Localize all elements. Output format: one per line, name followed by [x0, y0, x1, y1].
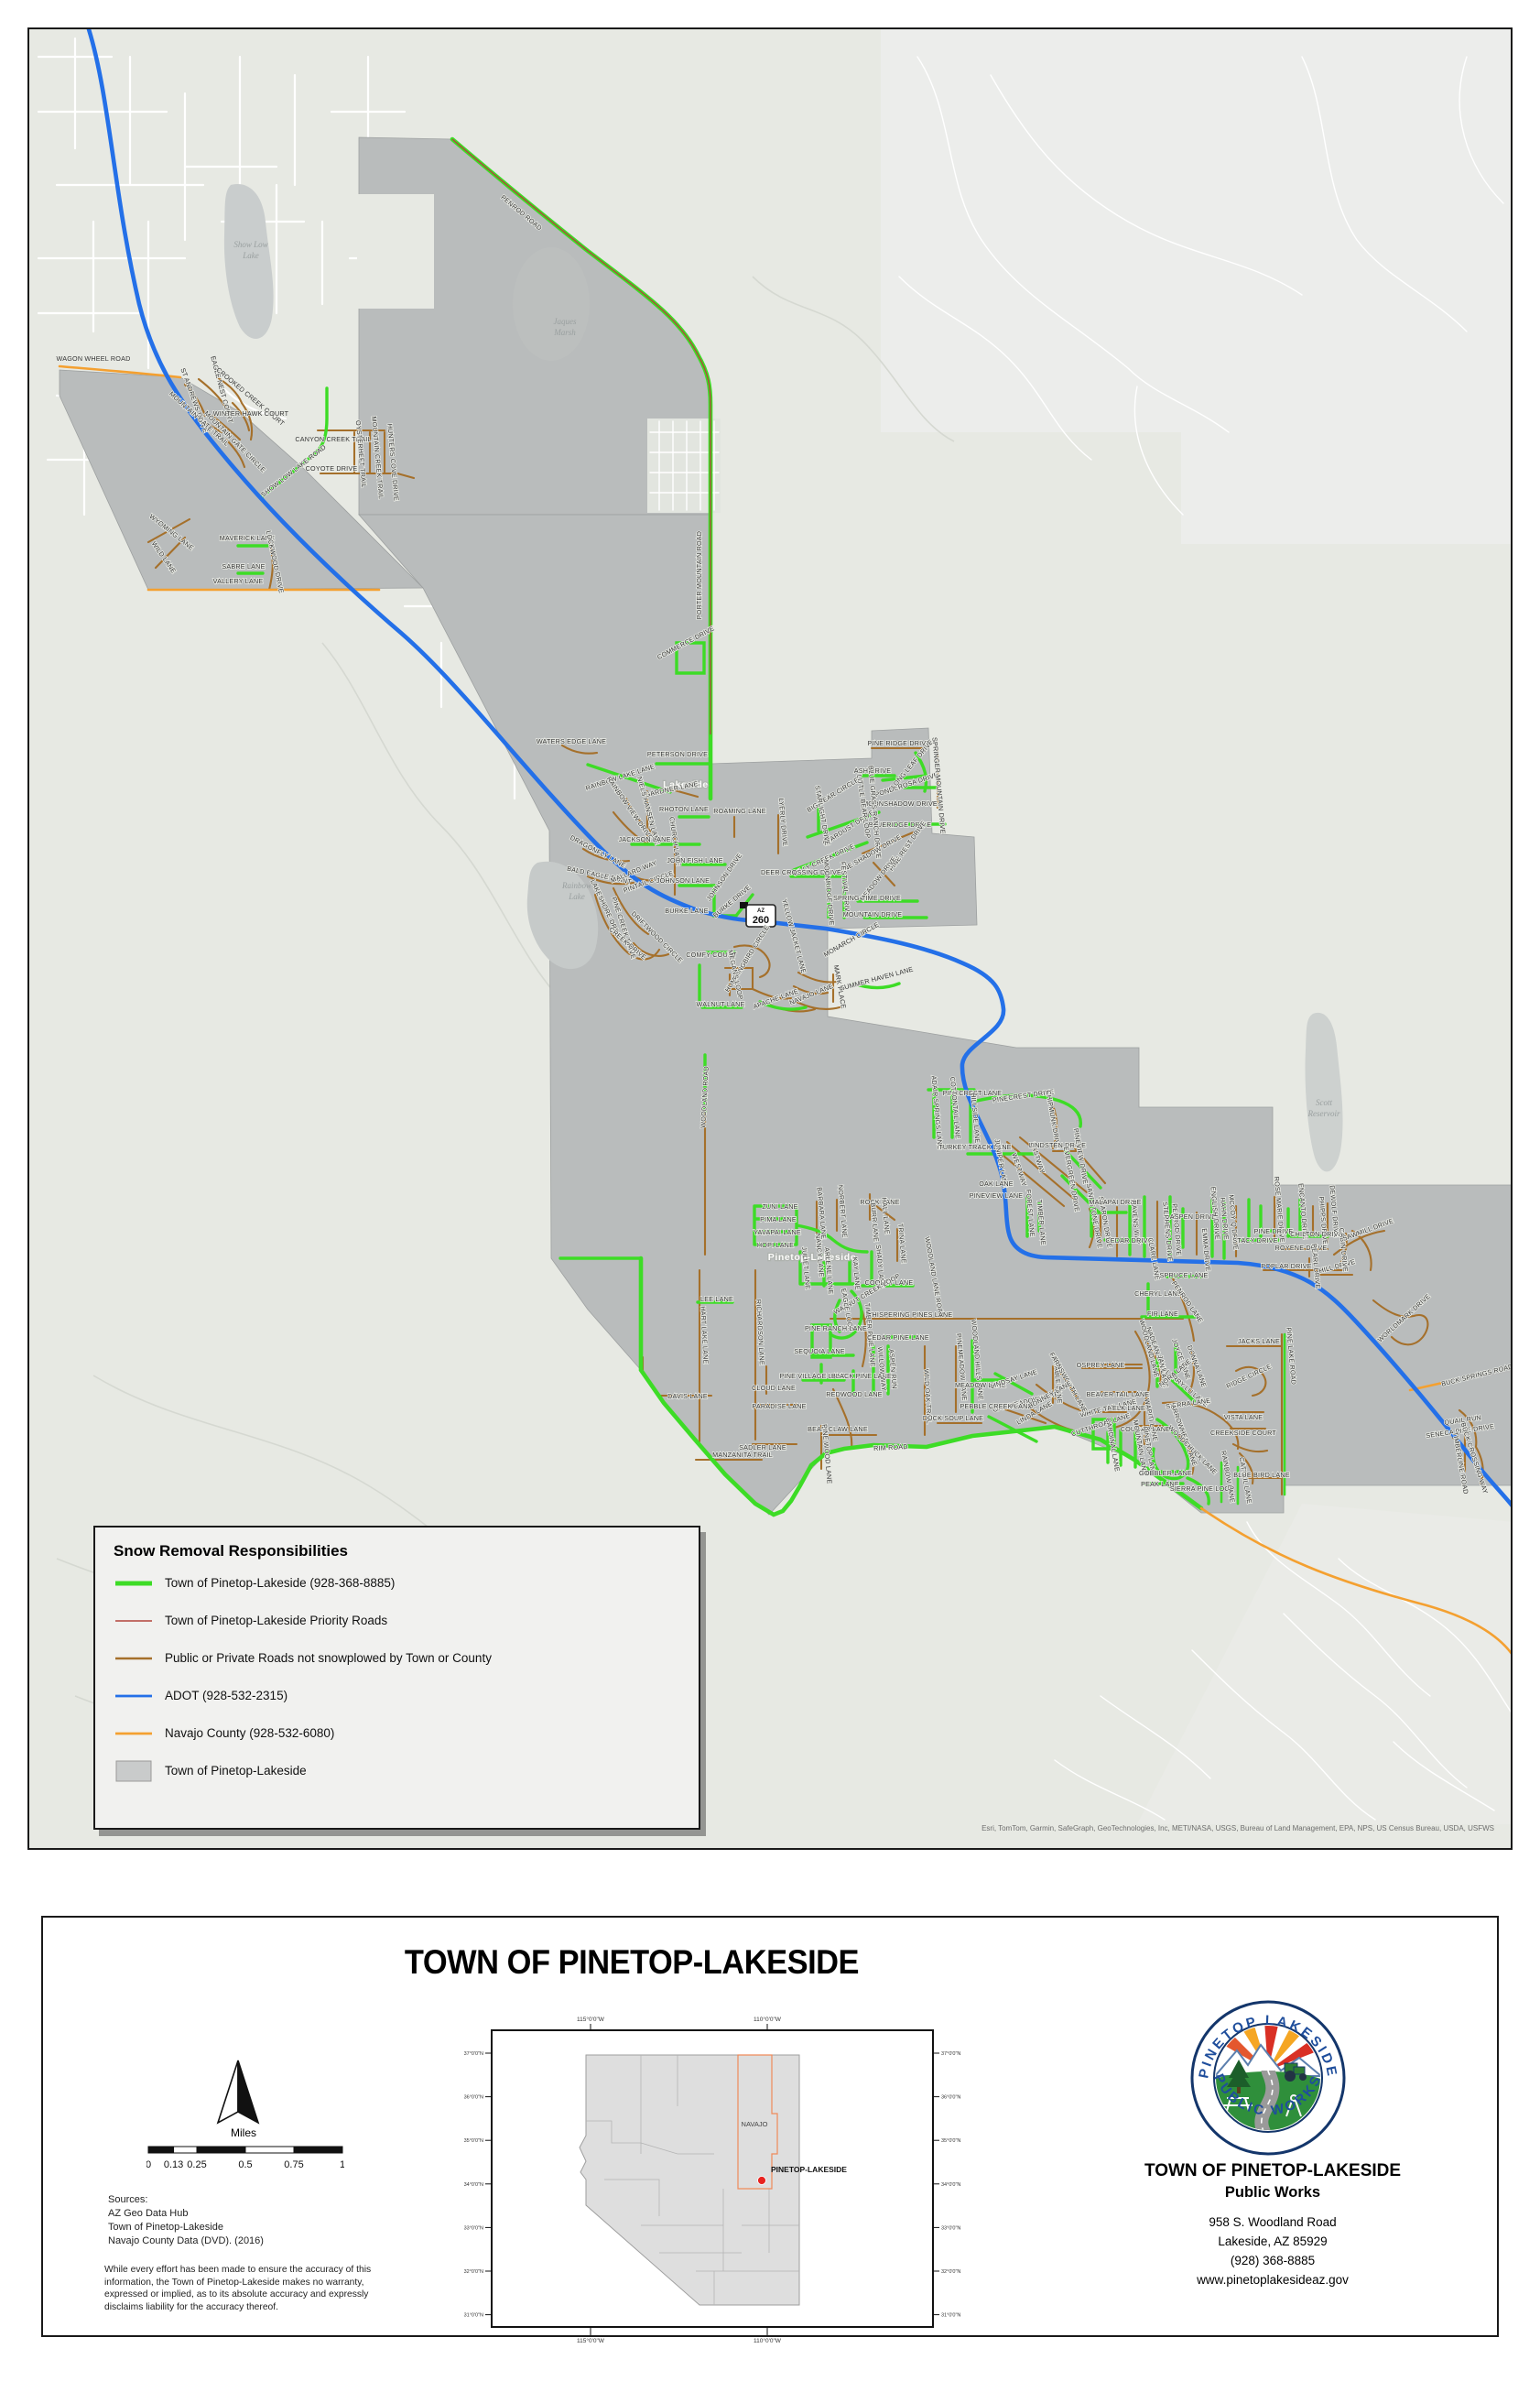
road-label: ROAMING LANE: [713, 807, 766, 815]
inset-lat-label: 34°0'0"N: [464, 2182, 483, 2188]
org-phone: (928) 368-8885: [1080, 2251, 1465, 2270]
inset-lat-label: 31°0'0"N: [464, 2313, 483, 2319]
road-label: OSPREY LANE: [1077, 1361, 1125, 1369]
legend-label: Public or Private Roads not snowplowed b…: [165, 1651, 492, 1665]
water-label: Lake: [242, 251, 259, 260]
legend-label: ADOT (928-532-2315): [165, 1689, 287, 1702]
inset-lat-label: 37°0'0"N: [464, 2051, 483, 2057]
road-label: CEDAR DRIVE: [1105, 1236, 1152, 1245]
page-title: TOWN OF PINETOP-LAKESIDE: [82, 1943, 1181, 1982]
scale-bar: 00.130.250.50.751: [146, 2145, 344, 2174]
road-label: DAVIS LANE: [667, 1392, 708, 1400]
inset-lon-top-east: 110°0'0"W: [754, 2016, 782, 2023]
road-label: WALNUT LANE: [697, 1000, 745, 1008]
boundary-notch: [357, 194, 434, 309]
road-label: GOBBLER LANE: [1139, 1469, 1192, 1477]
road-label: SIERRA PINE LOOP: [1170, 1484, 1234, 1493]
legend-item-private-roads: Public or Private Roads not snowplowed b…: [95, 1639, 699, 1677]
road-label: DUCK SOUP LANE: [923, 1414, 983, 1422]
scott-reservoir: [1305, 1013, 1342, 1172]
inset-map-graphic: 115°0'0"W 110°0'0"W 115°0'0"W 110°0'0"W …: [403, 2011, 1044, 2359]
road-label: MANZANITA TRAIL: [712, 1451, 773, 1459]
green-line-swatch: [114, 1579, 154, 1588]
legend-label: Town of Pinetop-Lakeside: [165, 1764, 307, 1778]
north-arrow-icon: [212, 2059, 264, 2128]
road-label: ASPEN DRIVE: [1170, 1212, 1217, 1221]
scale-segment: [245, 2147, 294, 2153]
arizona-shape: NAVAJO PINETOP-LAKESIDE: [580, 2055, 847, 2305]
legend-label: Town of Pinetop-Lakeside (928-368-8885): [165, 1576, 395, 1590]
org-address2: Lakeside, AZ 85929: [1080, 2232, 1465, 2251]
org-dept: Public Works: [1080, 2184, 1465, 2202]
map-sheet: AZ 260 Show LowLakeJaquesMarshRainbowLak…: [0, 0, 1540, 2381]
map-outside-region-se: [1137, 1504, 1511, 1824]
road-label: LEE LANE: [700, 1295, 733, 1303]
road-label: JOHNSON LANE: [656, 876, 710, 885]
scale-tick-label: 0.13: [164, 2159, 183, 2170]
orange-line-swatch: [114, 1729, 154, 1738]
inset-lat-label: 37°0'0"N: [941, 2051, 960, 2057]
inset-lat-label: 36°0'0"N: [941, 2095, 960, 2101]
road-label: WAGON WHEEL ROAD: [57, 354, 131, 363]
road-label: ROCK LANE: [860, 1198, 899, 1206]
gray-fill-swatch: [114, 1759, 154, 1783]
road-label: BEAR CLAW LANE: [808, 1425, 868, 1433]
map-attribution: Esri, TomTom, Garmin, SafeGraph, GeoTech…: [934, 1824, 1494, 1832]
scale-segment: [148, 2147, 174, 2153]
disclaimer-note: While every effort has been made to ensu…: [104, 2264, 407, 2313]
road-label: SEQUOIA LANE: [794, 1347, 845, 1355]
road-label: COYOTE DRIVE: [306, 464, 358, 473]
shield-number: 260: [753, 915, 769, 926]
legend-item-town-roads: Town of Pinetop-Lakeside (928-368-8885): [95, 1564, 699, 1602]
town-location-dot: [758, 2177, 766, 2185]
water-label: Rainbow: [561, 881, 591, 890]
scale-segment: [174, 2147, 197, 2153]
sources-line: Sources:: [108, 2193, 264, 2207]
scale-segment: [197, 2147, 245, 2153]
inset-lat-label: 31°0'0"N: [941, 2313, 960, 2319]
road-label: CHILTON DRIVE: [1290, 1230, 1342, 1238]
road-label: JACKSON LANE: [618, 835, 670, 843]
sources-line: Navajo County Data (DVD). (2016): [108, 2234, 264, 2248]
show-low-lake: [224, 184, 274, 339]
road-label: RIM ROAD: [873, 1442, 908, 1452]
legend-item-priority-roads: Town of Pinetop-Lakeside Priority Roads: [95, 1602, 699, 1639]
scale-tick-label: 0.5: [238, 2159, 252, 2170]
road-label: RHOTON LANE: [659, 805, 709, 813]
road-label: REDWOOD LANE: [826, 1390, 883, 1398]
public-works-logo: PINETOP LAKESIDE PUBLIC WORKS: [1188, 1998, 1348, 2158]
road-label: PORTER MOUNTAIN ROAD: [695, 531, 703, 619]
road-label: CLOUD LANE: [752, 1384, 796, 1392]
road-label: ZUNI LANE: [762, 1202, 797, 1211]
inset-lon-bottom-west: 115°0'0"W: [577, 2337, 605, 2344]
road-label: BLUE BIRD LANE: [1233, 1471, 1290, 1479]
water-label: Reservoir: [1307, 1109, 1340, 1118]
org-address1: 958 S. Woodland Road: [1080, 2212, 1465, 2232]
legend-label: Town of Pinetop-Lakeside Priority Roads: [165, 1614, 387, 1627]
legend-item-town-area: Town of Pinetop-Lakeside: [95, 1752, 699, 1789]
legend: Snow Removal Responsibilities Town of Pi…: [93, 1526, 700, 1830]
road-label: FIR LANE: [1147, 1310, 1178, 1318]
legend-item-navajo-county: Navajo County (928-532-6080): [95, 1714, 699, 1752]
road-label: CEDAR PINE LANE: [867, 1333, 929, 1342]
road-label: JOHN FISH LANE: [667, 856, 723, 864]
road-label: POPLAR DRIVE: [1261, 1262, 1312, 1270]
org-contact-block: TOWN OF PINETOP-LAKESIDE Public Works 95…: [1080, 2161, 1465, 2289]
scale-segment: [294, 2147, 342, 2153]
road-label: BEAVER TAIL LANE: [1087, 1390, 1150, 1398]
road-label: VISTA LANE: [1224, 1413, 1263, 1421]
water-label: Marsh: [553, 328, 576, 337]
road-label: WATERS EDGE LANE: [537, 737, 606, 745]
sources-line: Town of Pinetop-Lakeside: [108, 2221, 264, 2234]
road-label: ELK LANE: [1112, 1404, 1145, 1412]
road-label: HOPI LANE: [757, 1241, 794, 1249]
scale-unit-label: Miles: [146, 2126, 341, 2139]
brown-line-swatch: [114, 1654, 154, 1663]
org-website: www.pinetoplakesideaz.gov: [1080, 2270, 1465, 2289]
blue-line-swatch: [114, 1691, 154, 1701]
road-label: PINE DRIVE: [1254, 1227, 1294, 1235]
red-line-swatch: [114, 1616, 154, 1625]
inset-lat-label: 34°0'0"N: [941, 2182, 960, 2188]
town-label: PINETOP-LAKESIDE: [771, 2165, 847, 2174]
inset-lat-label: 33°0'0"N: [941, 2225, 960, 2231]
shield-state: AZ: [757, 908, 765, 914]
inset-lat-label: 36°0'0"N: [464, 2095, 483, 2101]
water-label: Lake: [568, 892, 585, 901]
map-outside-region: [881, 29, 1511, 544]
scale-tick-label: 1: [340, 2159, 344, 2170]
county-label: NAVAJO: [742, 2120, 768, 2128]
road-label: PINE RANCH LANE: [805, 1324, 867, 1332]
inset-lon-top-west: 115°0'0"W: [577, 2016, 605, 2023]
disclaimer-line: disclaims liability for the accuracy the…: [104, 2301, 407, 2314]
road-label: JACKS LANE: [1238, 1337, 1280, 1345]
road-label: MOUNTAIN DRIVE: [843, 910, 903, 919]
road-label: YAVAPAI LANE: [754, 1228, 801, 1236]
road-label: WINTER HAWK COURT: [213, 409, 289, 418]
scale-tick-label: 0: [146, 2159, 151, 2170]
road-label: BURKE LANE: [665, 907, 709, 915]
water-label: Show Low: [233, 240, 267, 249]
legend-item-adot: ADOT (928-532-2315): [95, 1677, 699, 1714]
inset-lat-label: 35°0'0"N: [941, 2138, 960, 2144]
disclaimer-line: information, the Town of Pinetop-Lakesid…: [104, 2277, 407, 2289]
water-label: Scott: [1316, 1098, 1332, 1107]
scale-tick-label: 0.25: [187, 2159, 206, 2170]
road-label: PARADISE LANE: [752, 1402, 806, 1410]
road-label: PEBBLE CREEK LANE: [960, 1402, 1033, 1410]
disclaimer-line: expressed or implied, as to its absolute…: [104, 2289, 407, 2301]
org-name: TOWN OF PINETOP-LAKESIDE: [1080, 2161, 1465, 2181]
inset-lat-label: 32°0'0"N: [941, 2269, 960, 2275]
road-label: SPRUCE LANE: [1160, 1271, 1209, 1279]
road-label: CREEKSIDE COURT: [1210, 1429, 1276, 1437]
disclaimer-line: While every effort has been made to ensu…: [104, 2264, 407, 2277]
jaques-marsh: [513, 247, 590, 361]
road-label: SPRINGER MOUNTAIN DRIVE: [930, 737, 947, 834]
road-label: SABRE LANE: [222, 562, 265, 571]
sources-line: AZ Geo Data Hub: [108, 2207, 264, 2221]
road-label: PETERSON DRIVE: [647, 750, 708, 758]
road-label: OAK LANE: [979, 1180, 1014, 1188]
road-label: SPRING TIME DRIVE: [833, 894, 901, 902]
town-name-label: Pinetop-Lakeside: [768, 1252, 857, 1263]
road-label: STACY DRIVE: [1232, 1236, 1277, 1245]
road-label: PIMA LANE: [760, 1215, 797, 1223]
legend-label: Navajo County (928-532-6080): [165, 1726, 334, 1740]
water-label: Jaques: [554, 317, 577, 326]
inset-lat-label: 35°0'0"N: [464, 2138, 483, 2144]
inset-lat-label: 32°0'0"N: [464, 2269, 483, 2275]
inset-lat-label: 33°0'0"N: [464, 2225, 483, 2231]
road-label: WHISPERING PINES LANE: [866, 1310, 953, 1319]
legend-title: Snow Removal Responsibilities: [114, 1542, 699, 1560]
sources-note: Sources:AZ Geo Data HubTown of Pinetop-L…: [108, 2193, 264, 2248]
scale-tick-label: 0.75: [284, 2159, 303, 2170]
road-label: VALLERY LANE: [213, 577, 264, 585]
road-label: PINEVIEW LANE: [970, 1191, 1024, 1200]
inset-lon-bottom-east: 110°0'0"W: [754, 2337, 782, 2344]
